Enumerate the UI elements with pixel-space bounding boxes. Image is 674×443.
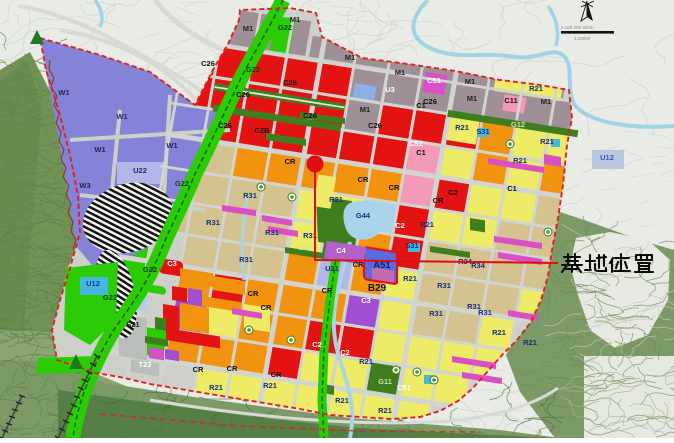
svg-text:R31: R31 — [437, 281, 451, 290]
svg-text:W1: W1 — [58, 88, 69, 97]
svg-text:CR: CR — [261, 303, 272, 312]
svg-text:S21: S21 — [126, 320, 139, 329]
svg-text:C3: C3 — [361, 296, 371, 305]
svg-text:C1: C1 — [507, 184, 517, 193]
svg-text:M1: M1 — [243, 24, 253, 33]
svg-text:R31: R31 — [206, 218, 220, 227]
svg-text:R21: R21 — [359, 357, 373, 366]
svg-text:G22: G22 — [103, 293, 117, 302]
svg-text:C1: C1 — [416, 101, 426, 110]
svg-text:CR: CR — [285, 157, 296, 166]
svg-text:U3: U3 — [385, 85, 395, 94]
svg-text:R21: R21 — [513, 156, 527, 165]
svg-text:M1: M1 — [465, 77, 475, 86]
svg-text:R21: R21 — [540, 137, 554, 146]
svg-text:R21: R21 — [523, 338, 537, 347]
svg-text:C51: C51 — [427, 76, 441, 85]
svg-text:U12: U12 — [86, 279, 100, 288]
svg-text:CR: CR — [193, 365, 204, 374]
svg-text:W1: W1 — [166, 141, 177, 150]
svg-text:C2: C2 — [312, 340, 322, 349]
svg-text:C2: C2 — [340, 348, 350, 357]
svg-text:G22: G22 — [246, 65, 260, 74]
svg-text:C26: C26 — [201, 59, 215, 68]
svg-text:R21: R21 — [209, 383, 223, 392]
svg-text:U22: U22 — [133, 166, 147, 175]
svg-text:G44: G44 — [356, 211, 371, 220]
svg-text:G22: G22 — [278, 23, 292, 32]
svg-text:1:10000: 1:10000 — [574, 36, 591, 41]
svg-text:W1: W1 — [116, 112, 127, 121]
svg-text:C26: C26 — [236, 90, 250, 99]
svg-text:C51: C51 — [397, 383, 411, 392]
svg-text:C2: C2 — [395, 221, 405, 230]
svg-text:R21: R21 — [263, 381, 277, 390]
svg-text:R21: R21 — [492, 328, 506, 337]
svg-text:R31: R31 — [429, 309, 443, 318]
svg-text:C26: C26 — [368, 121, 382, 130]
svg-text:R21: R21 — [529, 84, 543, 93]
svg-text:M1: M1 — [395, 68, 405, 77]
svg-text:CR: CR — [322, 286, 333, 295]
svg-text:G22: G22 — [143, 265, 157, 274]
svg-text:C3: C3 — [167, 259, 177, 268]
svg-text:S31: S31 — [476, 127, 489, 136]
svg-text:C26: C26 — [218, 121, 232, 130]
svg-text:S31: S31 — [405, 241, 418, 250]
svg-text:R21: R21 — [329, 195, 343, 204]
svg-text:C26: C26 — [303, 111, 317, 120]
svg-text:0 100 200 300m: 0 100 200 300m — [561, 25, 594, 30]
svg-text:CR: CR — [358, 175, 369, 184]
svg-text:CR: CR — [433, 196, 444, 205]
svg-text:R21: R21 — [455, 123, 469, 132]
svg-text:M1: M1 — [541, 97, 551, 106]
svg-text:B29: B29 — [368, 283, 387, 294]
svg-text:T23: T23 — [139, 360, 152, 369]
svg-text:C26: C26 — [283, 78, 297, 87]
svg-text:U21: U21 — [325, 264, 339, 273]
svg-text:R31: R31 — [478, 308, 492, 317]
svg-text:CR: CR — [271, 370, 282, 379]
svg-text:C1: C1 — [416, 148, 426, 157]
svg-text:M1: M1 — [360, 105, 370, 114]
svg-text:W1: W1 — [94, 145, 105, 154]
svg-text:C11: C11 — [504, 96, 517, 105]
svg-text:C2B: C2B — [254, 126, 270, 135]
svg-text:M1: M1 — [467, 94, 477, 103]
svg-text:R31: R31 — [239, 255, 253, 264]
svg-text:G22: G22 — [175, 179, 189, 188]
svg-text:CR: CR — [227, 364, 238, 373]
svg-text:G12: G12 — [511, 120, 525, 129]
svg-text:R21: R21 — [403, 274, 417, 283]
svg-text:C4: C4 — [336, 246, 346, 255]
svg-text:G12: G12 — [298, 243, 312, 252]
svg-text:G11: G11 — [378, 377, 392, 386]
svg-text:R21: R21 — [335, 396, 349, 405]
svg-text:C51: C51 — [409, 139, 423, 148]
svg-text:R21: R21 — [420, 220, 434, 229]
svg-text:W3: W3 — [79, 181, 90, 190]
svg-text:R31: R31 — [265, 228, 279, 237]
svg-text:R31: R31 — [243, 191, 257, 200]
svg-text:C2: C2 — [448, 188, 458, 197]
svg-text:M1: M1 — [345, 53, 355, 62]
svg-text:CR: CR — [389, 183, 400, 192]
svg-text:R21: R21 — [378, 406, 392, 415]
svg-text:U12: U12 — [600, 153, 614, 162]
svg-text:CR: CR — [248, 289, 259, 298]
